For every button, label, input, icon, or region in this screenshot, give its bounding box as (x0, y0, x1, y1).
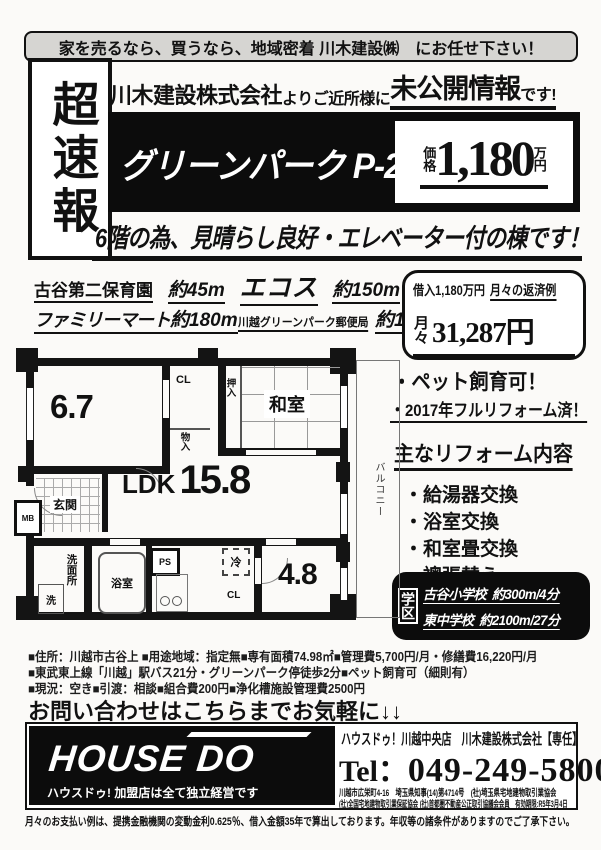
facility-distance: 約45m (168, 275, 225, 304)
tel-label: Tel： (339, 746, 408, 790)
price-row: 価格 1,180 万円 (420, 135, 548, 189)
reform-title: 主なリフォーム内容 (394, 438, 573, 471)
ldk-label-group: LDK 15.8 (122, 458, 249, 503)
facility-name: 古谷第二保育園 (34, 276, 153, 303)
subheader-suffix: です! (520, 81, 556, 106)
subtitle: 6階の為、見晴らし良好・エレベーター付の棟です！ (95, 218, 515, 255)
school-name: 東中学校 (423, 609, 473, 629)
school-distance: 約300m/4分 (492, 583, 559, 603)
subheader-middle: よりご近所様に (282, 85, 390, 110)
window (26, 388, 34, 440)
footer-logo-panel: HOUSE DO ハウスドゥ! 加盟店は全て独立経営です (29, 726, 335, 805)
footer-box: HOUSE DO ハウスドゥ! 加盟店は全て独立経営です ハウスドゥ！川越中央店… (25, 722, 578, 810)
loan-monthly-row: 月々 31,287円 (413, 309, 575, 357)
subheader: 川木建設株式会社 よりご近所様に 未公開情報 です! (110, 64, 580, 110)
oshiire-label: 押入 (225, 378, 235, 397)
subheader-highlight-group: 未公開情報 です! (390, 67, 556, 110)
door-gap (246, 450, 316, 455)
room-size-label: 6.7 (50, 388, 93, 426)
window (340, 494, 348, 534)
tel-row: Tel： 049-249-5800 (339, 746, 601, 790)
price-label: 価格 (422, 146, 435, 172)
wall-segment (336, 462, 350, 482)
facilities-row-2: ファミリーマート 約180m 川越グリーンパーク郵便局 約180m (34, 305, 400, 334)
logo-subtext: ハウスドゥ! 加盟店は全て独立経営です (47, 784, 258, 801)
wall-segment (84, 546, 92, 612)
facility-distance: 約150m (332, 275, 400, 304)
school-name: 古谷小学校 (423, 583, 486, 603)
bathtub: 浴室 (98, 552, 146, 614)
facility-name: ファミリーマート (34, 306, 170, 334)
flash-badge-text: 超速報 (47, 80, 94, 239)
loan-amount: 借入1,180万円 (413, 279, 485, 301)
license-line: (社)全国宅地建物取引業保証協会 (社)首都圏不動産公正取引協議会会員 有効期限… (339, 797, 568, 810)
stove-burner (160, 596, 170, 606)
ldk-size: 15.8 (179, 458, 249, 503)
window (340, 568, 348, 600)
facility-distance: 約180m (170, 305, 238, 334)
balcony-area: バルコニー (356, 360, 400, 618)
reform-item: ・給湯器交換 (404, 480, 518, 507)
washing-machine: 洗 (38, 584, 64, 614)
title-bar: グリーンパーク P-2棟 価格 1,180 万円 (108, 112, 580, 212)
school-lines: 古谷小学校 約300m/4分 東中学校 約2100m/27分 (423, 583, 564, 630)
entrance-label: 玄関 (50, 496, 80, 513)
ldk-label: LDK (122, 469, 175, 500)
stove-burner (172, 596, 182, 606)
storage-label: 物入 (179, 432, 189, 451)
top-banner-text: 家を売るなら、買うなら、地域密着 川木建設㈱ にお任せ下さい！ (59, 35, 543, 59)
floorplan: バルコニー MB 浴室 洗 PS 冷 6.7 CL 物入 押入 和室 玄関 LD… (14, 348, 406, 630)
meter-box: MB (14, 500, 42, 536)
subheader-highlight: 未公開情報 (390, 67, 520, 106)
door-gap (255, 558, 261, 584)
bath-label: 浴室 (111, 575, 133, 591)
loan-monthly-label: 月々 (413, 315, 428, 345)
facilities-row-1: 古谷第二保育園 約45m エコス 約150m (34, 268, 400, 306)
loan-example-label: 月々の返済例 (490, 279, 556, 301)
door-gap (110, 539, 140, 545)
school-district-badge: 学区 古谷小学校 約300m/4分 東中学校 約2100m/27分 (392, 572, 590, 640)
laundry-label: 洗 (46, 592, 56, 607)
reform-item: ・和室畳交換 (404, 534, 518, 561)
housedo-logo: HOUSE DO (47, 738, 257, 780)
school-item: 古谷小学校 約300m/4分 (423, 583, 560, 604)
closet-label: CL (176, 374, 191, 386)
japanese-room-label: 和室 (264, 390, 310, 418)
feature-pets: ・ペット飼育可！ (392, 366, 547, 396)
divider-rule (92, 256, 582, 261)
facility-name: 川越グリーンパーク郵便局 (238, 314, 369, 332)
disclaimer: 月々のお支払い例は、提携金融機関の変動金利0.625％、借入金額35年で算出して… (25, 813, 575, 829)
facility-name: エコス (240, 268, 318, 306)
kitchen-sink (156, 574, 188, 612)
school-item: 東中学校 約2100m/27分 (423, 609, 560, 630)
reform-item: ・浴室交換 (404, 507, 499, 534)
window (340, 386, 348, 428)
wall-segment (26, 612, 348, 620)
wall-segment (102, 474, 108, 532)
washroom-label: 洗面所 (66, 554, 77, 586)
property-title: グリーンパーク P-2棟 (120, 138, 434, 189)
wall-segment (26, 358, 348, 366)
pipe-space: PS (150, 548, 180, 576)
wall-segment (26, 538, 348, 546)
door-gap (266, 539, 296, 545)
fridge-space: 冷 (222, 548, 250, 576)
loan-monthly-value: 31,287円 (432, 309, 534, 351)
closet2-label: CL (227, 590, 240, 601)
logo-swash (187, 732, 312, 737)
door-gap (163, 380, 169, 418)
loan-box: 借入1,180万円 月々の返済例 月々 31,287円 (402, 270, 586, 360)
flyer-page: 家を売るなら、買うなら、地域密着 川木建設㈱ にお任せ下さい！ 超速報 川木建設… (0, 0, 601, 850)
price-unit: 万円 (533, 146, 546, 172)
school-distance: 約2100m/27分 (479, 609, 559, 629)
price-value: 1,180 (435, 135, 533, 183)
room2-size-label: 4.8 (278, 558, 317, 592)
wall-segment (198, 348, 218, 366)
wall-segment (16, 348, 38, 372)
feature-renovation: ・2017年フルリフォーム済！ (390, 396, 587, 423)
partition-line (170, 428, 210, 430)
subheader-company: 川木建設株式会社 (110, 78, 282, 110)
loan-header: 借入1,180万円 月々の返済例 (413, 279, 546, 301)
balcony-label: バルコニー (373, 462, 383, 517)
price-box: 価格 1,180 万円 (395, 121, 573, 203)
meter-box-label: MB (22, 514, 34, 523)
pipe-space-label: PS (159, 557, 171, 567)
fridge-label: 冷 (231, 554, 242, 570)
wall-segment (16, 596, 38, 620)
